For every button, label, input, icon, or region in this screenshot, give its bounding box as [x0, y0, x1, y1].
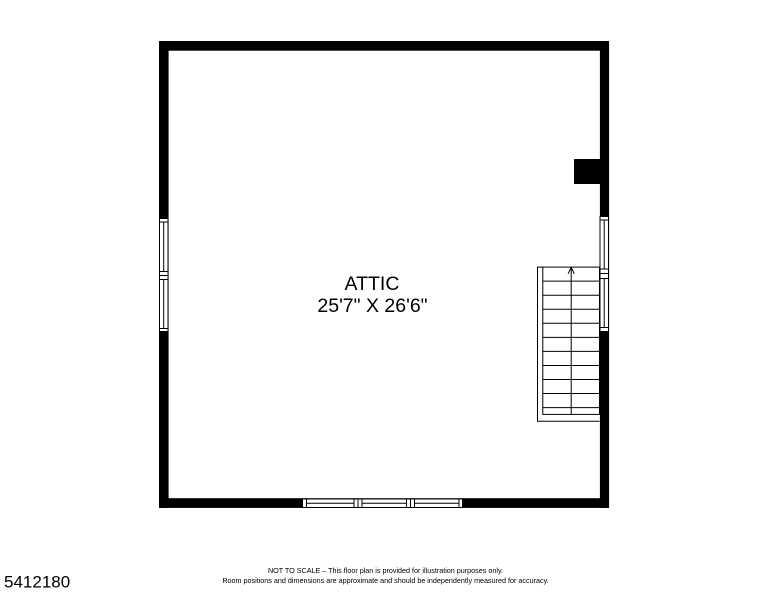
svg-text:25'7" X 26'6": 25'7" X 26'6": [317, 295, 427, 317]
svg-text:Room positions and dimensions: Room positions and dimensions are approx…: [222, 576, 548, 585]
svg-text:NOT TO SCALE – This floor plan: NOT TO SCALE – This floor plan is provid…: [268, 566, 503, 575]
svg-text:ATTIC: ATTIC: [345, 273, 400, 295]
svg-text:5412180: 5412180: [4, 572, 70, 591]
